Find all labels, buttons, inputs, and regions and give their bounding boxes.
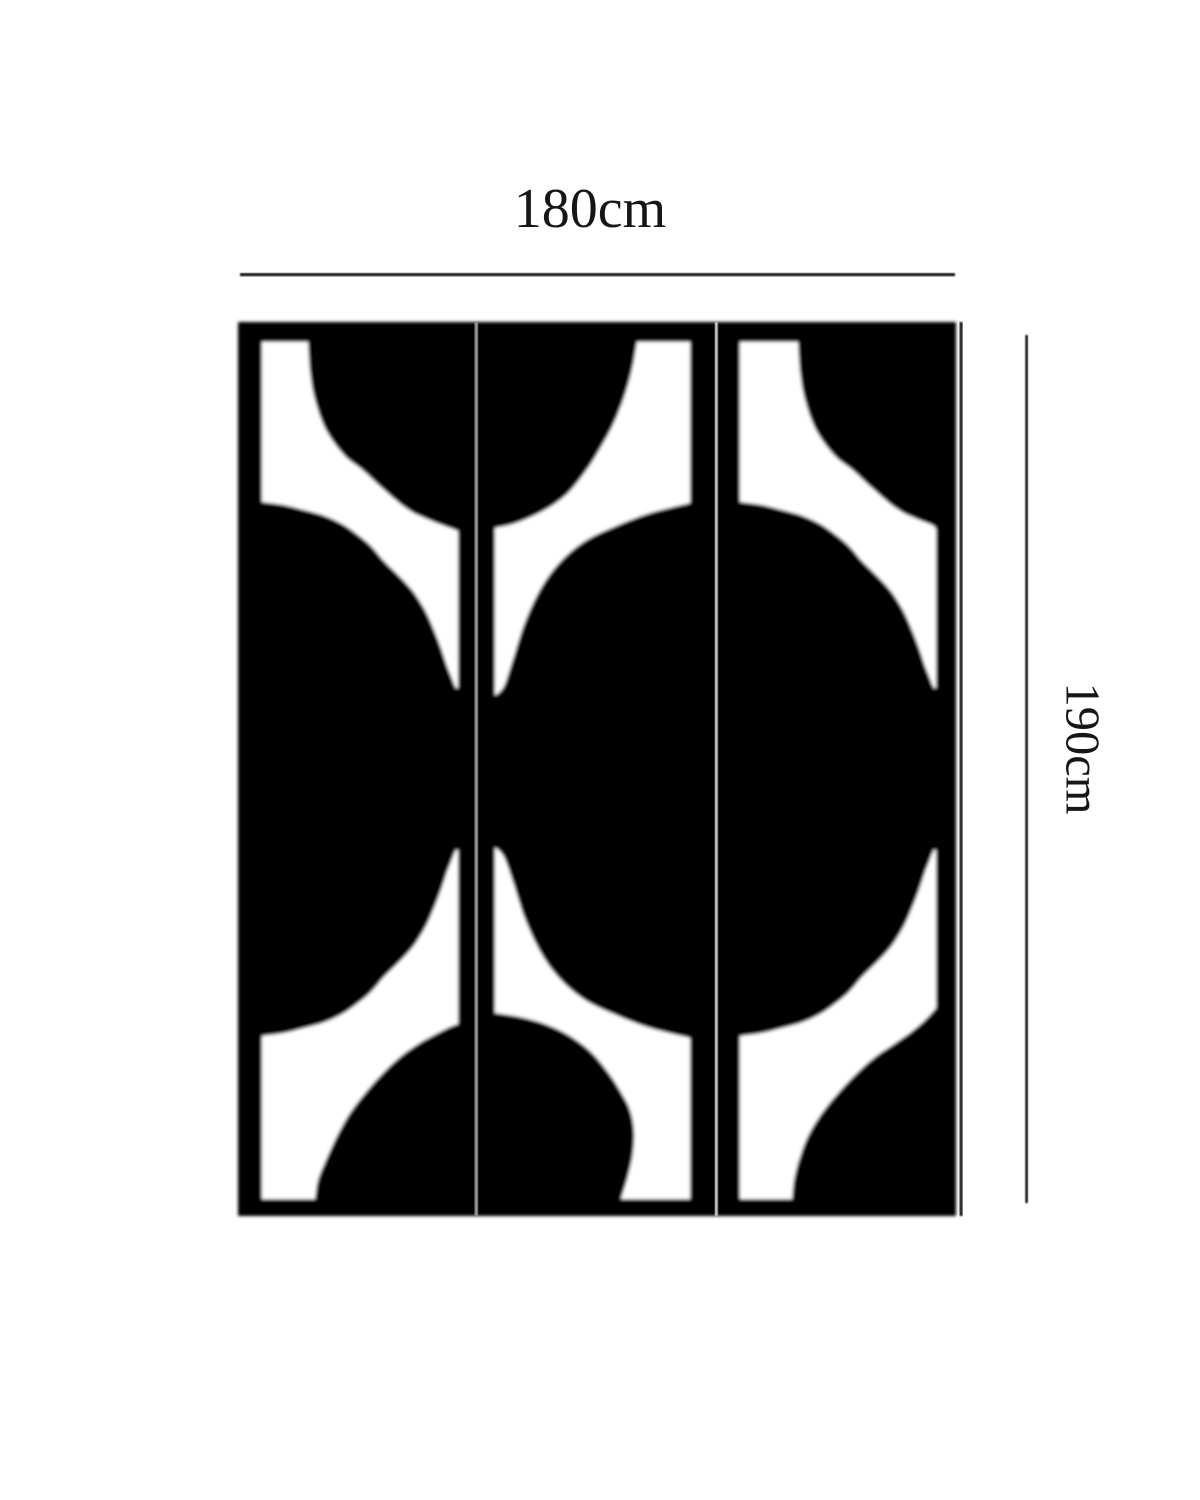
svg-text:190cm: 190cm xyxy=(1056,682,1109,814)
svg-text:180cm: 180cm xyxy=(514,178,666,240)
